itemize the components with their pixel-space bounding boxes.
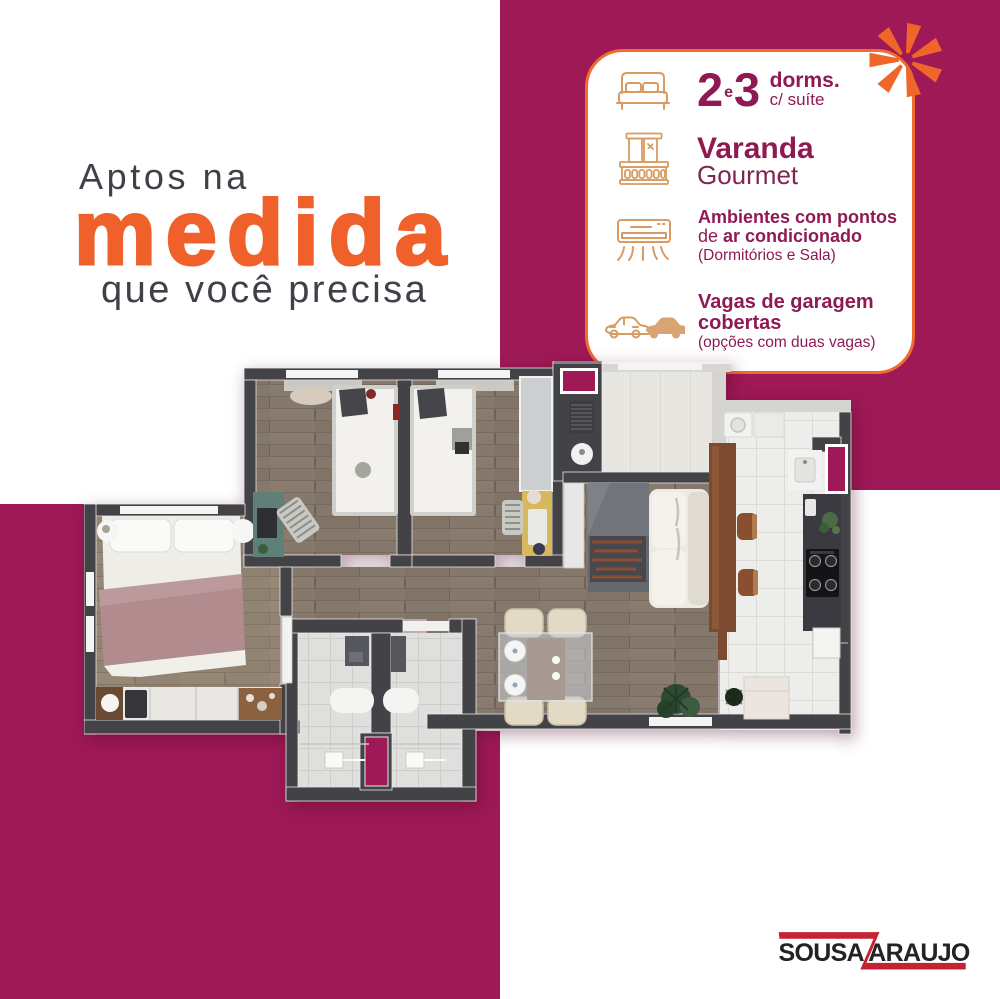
- svg-text:SOUSA ARAUJO: SOUSA ARAUJO: [779, 939, 970, 967]
